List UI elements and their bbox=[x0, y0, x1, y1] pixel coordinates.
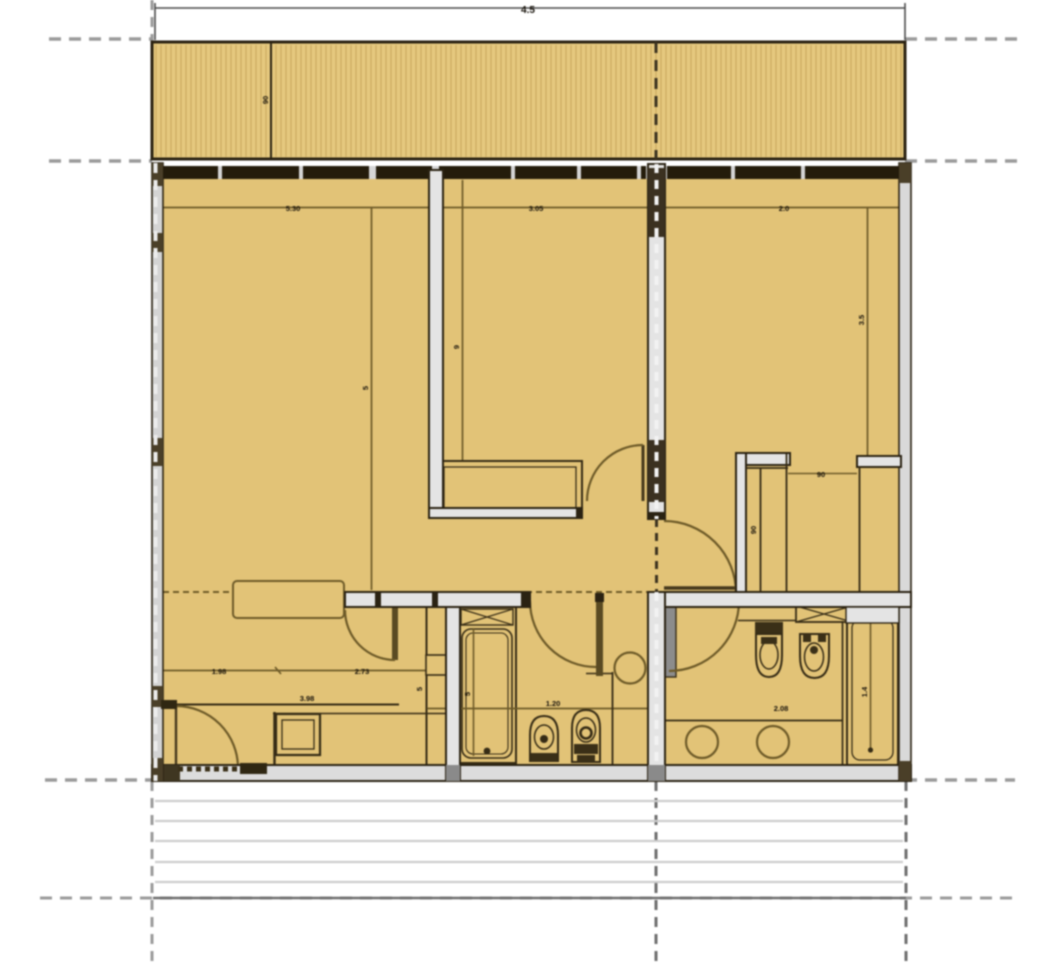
svg-text:3.5: 3.5 bbox=[857, 315, 866, 325]
svg-text:5: 5 bbox=[463, 692, 472, 696]
svg-text:5.30: 5.30 bbox=[286, 204, 301, 213]
svg-text:4.5: 4.5 bbox=[521, 5, 535, 16]
svg-text:90: 90 bbox=[749, 526, 758, 534]
svg-text:1.4: 1.4 bbox=[860, 686, 869, 697]
svg-text:5: 5 bbox=[361, 386, 370, 390]
svg-text:90: 90 bbox=[817, 470, 825, 479]
svg-text:2.08: 2.08 bbox=[774, 704, 789, 713]
svg-text:3.98: 3.98 bbox=[300, 694, 315, 703]
svg-text:1.98: 1.98 bbox=[212, 667, 227, 676]
svg-text:90: 90 bbox=[261, 96, 270, 104]
svg-text:1.20: 1.20 bbox=[546, 699, 561, 708]
svg-text:2.0: 2.0 bbox=[779, 204, 789, 213]
svg-text:9: 9 bbox=[452, 345, 461, 349]
svg-text:3.05: 3.05 bbox=[529, 204, 544, 213]
svg-text:5: 5 bbox=[415, 687, 424, 691]
svg-text:2.73: 2.73 bbox=[355, 667, 370, 676]
